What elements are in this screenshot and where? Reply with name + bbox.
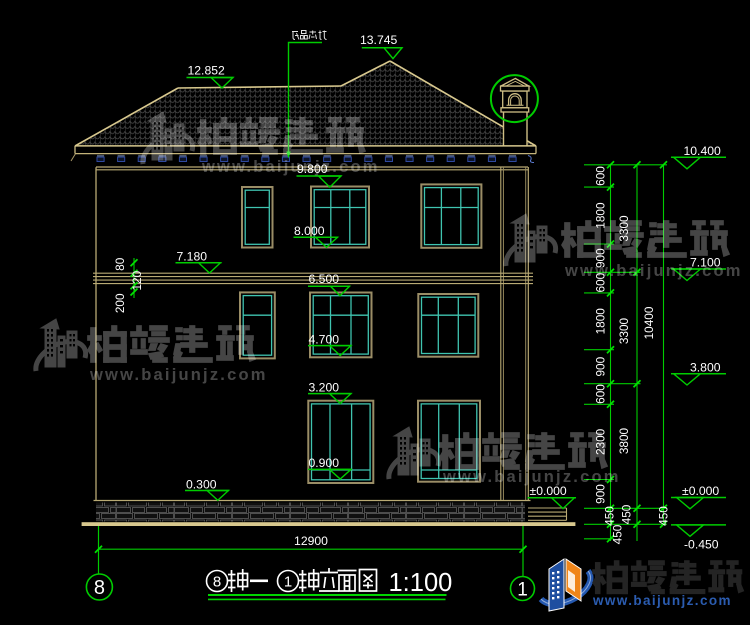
svg-text:12.852: 12.852 xyxy=(188,64,225,78)
svg-text:www.baijunjz.com: www.baijunjz.com xyxy=(201,158,380,176)
svg-text:200: 200 xyxy=(113,293,127,313)
svg-text:±0.000: ±0.000 xyxy=(682,484,719,498)
svg-text:12900: 12900 xyxy=(294,534,328,548)
svg-text:www.baijunjz.com: www.baijunjz.com xyxy=(564,262,743,280)
svg-text:1: 1 xyxy=(284,574,292,591)
svg-text:±0.000: ±0.000 xyxy=(530,484,567,498)
svg-text:8: 8 xyxy=(94,577,105,599)
svg-text:3.200: 3.200 xyxy=(309,381,340,395)
svg-text:-0.450: -0.450 xyxy=(684,538,719,552)
svg-text:600: 600 xyxy=(594,384,608,404)
svg-text:450: 450 xyxy=(620,504,634,524)
svg-text:6.500: 6.500 xyxy=(309,272,340,286)
svg-text:3.800: 3.800 xyxy=(690,360,721,374)
svg-text:600: 600 xyxy=(594,166,608,186)
svg-text:www.baijunjz.com: www.baijunjz.com xyxy=(89,366,268,384)
svg-text:1800: 1800 xyxy=(594,202,608,229)
svg-text:1:100: 1:100 xyxy=(389,569,453,597)
svg-text:0.900: 0.900 xyxy=(309,456,340,470)
svg-text:13.745: 13.745 xyxy=(360,33,397,47)
svg-text:10.400: 10.400 xyxy=(684,144,721,158)
svg-text:120: 120 xyxy=(130,270,144,290)
svg-text:450: 450 xyxy=(611,524,625,544)
svg-text:10400: 10400 xyxy=(642,306,656,339)
svg-text:1: 1 xyxy=(517,579,528,600)
svg-text:www.baijunjz.com: www.baijunjz.com xyxy=(592,593,732,608)
svg-text:1800: 1800 xyxy=(594,308,608,335)
svg-text:80: 80 xyxy=(113,257,127,271)
svg-text:450: 450 xyxy=(603,506,617,526)
svg-text:www.baijunjz.com: www.baijunjz.com xyxy=(442,468,621,486)
svg-text:900: 900 xyxy=(594,484,608,504)
svg-text:8.000: 8.000 xyxy=(294,224,325,238)
svg-text:3800: 3800 xyxy=(617,427,631,454)
svg-text:3300: 3300 xyxy=(617,317,631,344)
svg-text:8: 8 xyxy=(213,574,221,591)
svg-text:4.700: 4.700 xyxy=(309,332,340,346)
svg-text:7.180: 7.180 xyxy=(177,249,208,263)
svg-text:900: 900 xyxy=(594,356,608,376)
svg-text:0.300: 0.300 xyxy=(186,477,217,491)
svg-text:450: 450 xyxy=(657,506,671,526)
